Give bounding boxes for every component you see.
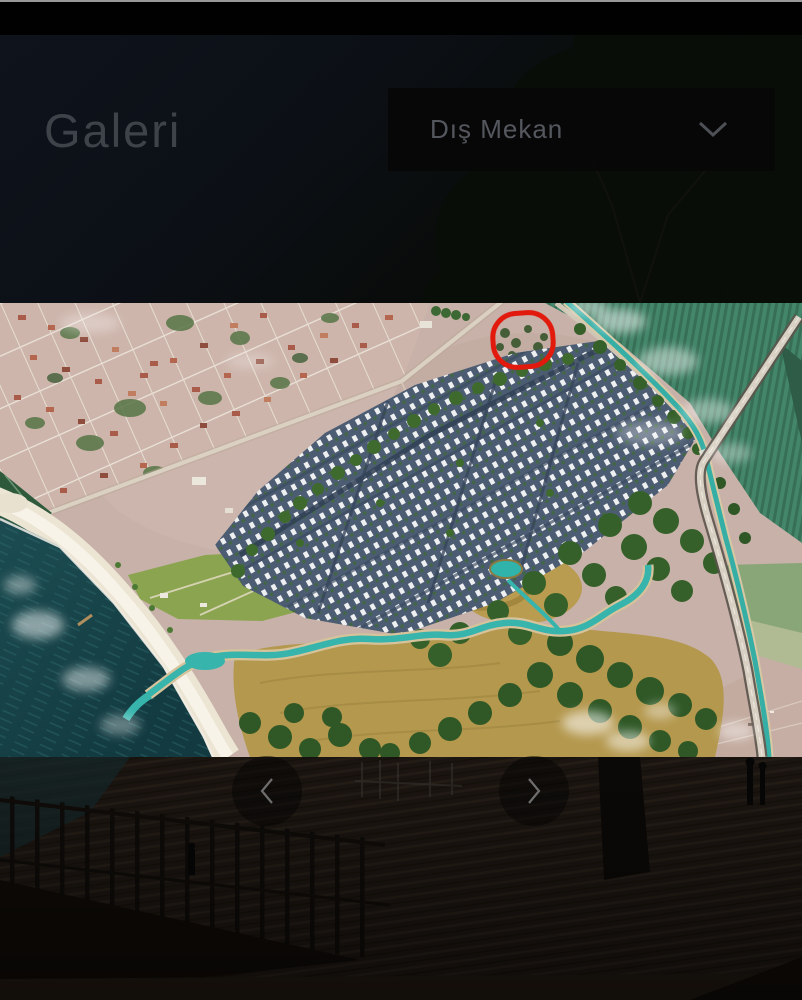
chevron-right-icon xyxy=(523,775,545,807)
bottom-shadow xyxy=(0,757,802,1000)
chevron-left-icon xyxy=(256,775,278,807)
page-title: Galeri xyxy=(44,103,181,159)
hero-backdrop-bottom xyxy=(0,757,802,1000)
gallery-slide-aerial-masterplan[interactable] xyxy=(0,303,802,757)
top-black-bar xyxy=(0,2,802,35)
filter-dropdown-label: Dış Mekan xyxy=(430,114,563,145)
chevron-down-icon xyxy=(697,121,729,138)
carousel-prev-button[interactable] xyxy=(232,756,302,826)
filter-dropdown[interactable]: Dış Mekan xyxy=(388,88,775,171)
gallery-page: Galeri Dış Mekan xyxy=(0,0,802,1000)
carousel-next-button[interactable] xyxy=(499,756,569,826)
